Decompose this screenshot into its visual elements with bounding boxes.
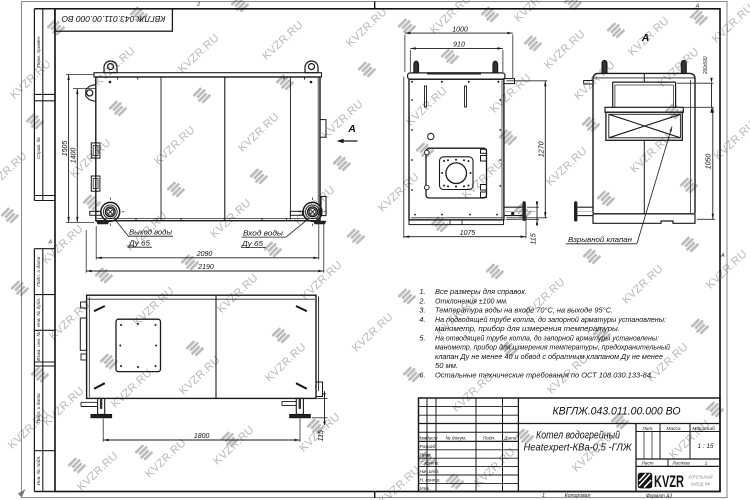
svg-text:Взам. инв. №: Взам. инв. № xyxy=(36,331,42,361)
svg-text:КВГЛЖ.043.011.00.000 ВО: КВГЛЖ.043.011.00.000 ВО xyxy=(553,406,681,418)
svg-text:1400: 1400 xyxy=(71,148,78,164)
svg-text:Нач.отд.: Нач.отд. xyxy=(420,469,440,474)
svg-text:Вход воды: Вход воды xyxy=(243,228,284,237)
svg-text:Подп. и дата: Подп. и дата xyxy=(36,256,42,286)
svg-text:Остальные технические требован: Остальные технические требования по ОСТ … xyxy=(435,370,653,379)
svg-text:Ду 65: Ду 65 xyxy=(241,239,264,248)
svg-text:Формат А3: Формат А3 xyxy=(646,493,672,499)
svg-text:Ду 65: Ду 65 xyxy=(128,239,151,248)
svg-text:2.: 2. xyxy=(418,296,425,305)
svg-text:910: 910 xyxy=(453,42,465,49)
svg-text:А: А xyxy=(641,32,650,44)
svg-text:Подп. и дата: Подп. и дата xyxy=(36,393,42,423)
svg-text:1000: 1000 xyxy=(452,26,468,33)
svg-text:1050: 1050 xyxy=(705,154,712,170)
svg-text:1505: 1505 xyxy=(62,141,69,157)
svg-text:Разраб.: Разраб. xyxy=(420,444,437,449)
svg-text:КВГЛЖ.043.011.00.000 ВО: КВГЛЖ.043.011.00.000 ВО xyxy=(61,14,165,24)
svg-text:А: А xyxy=(720,253,725,259)
svg-text:1270: 1270 xyxy=(539,141,546,157)
svg-text:Масса: Масса xyxy=(666,426,681,432)
svg-text:2190: 2190 xyxy=(197,264,214,271)
svg-text:3.: 3. xyxy=(419,306,425,315)
svg-text:Листов: Листов xyxy=(671,460,690,466)
svg-text:Справ. №: Справ. № xyxy=(36,137,42,159)
svg-text:2090: 2090 xyxy=(196,251,213,258)
svg-text:115: 115 xyxy=(318,430,325,441)
svg-text:манометр, прибор для измерения: манометр, прибор для измерения температу… xyxy=(435,343,670,352)
svg-text:200х500: 200х500 xyxy=(703,56,709,75)
svg-text:2: 2 xyxy=(196,2,200,8)
svg-text:Масштаб: Масштаб xyxy=(692,426,715,432)
svg-text:Утв.: Утв. xyxy=(420,486,431,491)
svg-text:А: А xyxy=(47,240,52,246)
svg-text:А: А xyxy=(695,3,700,9)
svg-text:Дата: Дата xyxy=(503,436,517,441)
svg-text:Н. контр.: Н. контр. xyxy=(420,478,441,483)
svg-text:KVZR: KVZR xyxy=(654,473,684,491)
svg-text:Котел водогрейный: Котел водогрейный xyxy=(536,430,620,442)
svg-text:Лит.: Лит. xyxy=(641,426,653,432)
svg-text:ЗАВОД РЖ: ЗАВОД РЖ xyxy=(691,482,712,487)
svg-text:50 мм.: 50 мм. xyxy=(435,361,458,370)
svg-text:Копировал: Копировал xyxy=(565,493,591,499)
svg-text:№ докум.: № докум. xyxy=(446,436,467,441)
svg-text:Подп.: Подп. xyxy=(483,436,495,441)
svg-text:Взрывной клапан: Взрывной клапан xyxy=(568,235,632,244)
svg-text:Heatexpert-КВа-0,5 -ГЛЖ: Heatexpert-КВа-0,5 -ГЛЖ xyxy=(524,442,633,453)
svg-text:115: 115 xyxy=(531,233,538,244)
svg-text:Пров.: Пров. xyxy=(420,452,432,457)
svg-text:6.: 6. xyxy=(419,370,425,379)
svg-text:Отклонения ±100 мм.: Отклонения ±100 мм. xyxy=(435,296,508,305)
svg-text:5.: 5. xyxy=(419,333,425,342)
svg-text:Инв. № дубл.: Инв. № дубл. xyxy=(36,298,42,328)
svg-text:1 : 15: 1 : 15 xyxy=(698,443,714,450)
svg-text:1075: 1075 xyxy=(460,230,476,237)
svg-text:1.: 1. xyxy=(419,287,425,296)
svg-text:КОТЕЛЬНЫЙ: КОТЕЛЬНЫЙ xyxy=(689,475,714,480)
svg-text:На отводящей трубе котла, до з: На отводящей трубе котла, до запорной ар… xyxy=(435,333,659,342)
svg-text:Инв. № подл.: Инв. № подл. xyxy=(36,456,42,486)
svg-text:1: 1 xyxy=(542,493,545,499)
svg-text:А: А xyxy=(347,123,356,135)
svg-text:4.: 4. xyxy=(419,315,425,324)
svg-text:1800: 1800 xyxy=(194,433,210,440)
svg-text:Перв. примен.: Перв. примен. xyxy=(36,36,42,68)
svg-text:Все размеры для справок.: Все размеры для справок. xyxy=(435,287,527,296)
svg-text:Т. контр.: Т. контр. xyxy=(420,461,440,466)
svg-text:Лист: Лист xyxy=(640,460,653,466)
svg-text:1: 1 xyxy=(705,460,708,466)
svg-text:Температура воды на входе 70°С: Температура воды на входе 70°С, на выход… xyxy=(435,306,613,315)
svg-text:Выход воды: Выход воды xyxy=(129,228,173,237)
svg-text:клапан Ду не менее 40 и обвод: клапан Ду не менее 40 и обвод с обратным… xyxy=(435,352,663,361)
svg-text:манометр, прибор для измерения: манометр, прибор для измерения температу… xyxy=(435,324,620,333)
svg-text:Лист: Лист xyxy=(424,436,437,441)
svg-text:На подводящей трубе котла, до: На подводящей трубе котла, до запорной а… xyxy=(435,315,666,324)
